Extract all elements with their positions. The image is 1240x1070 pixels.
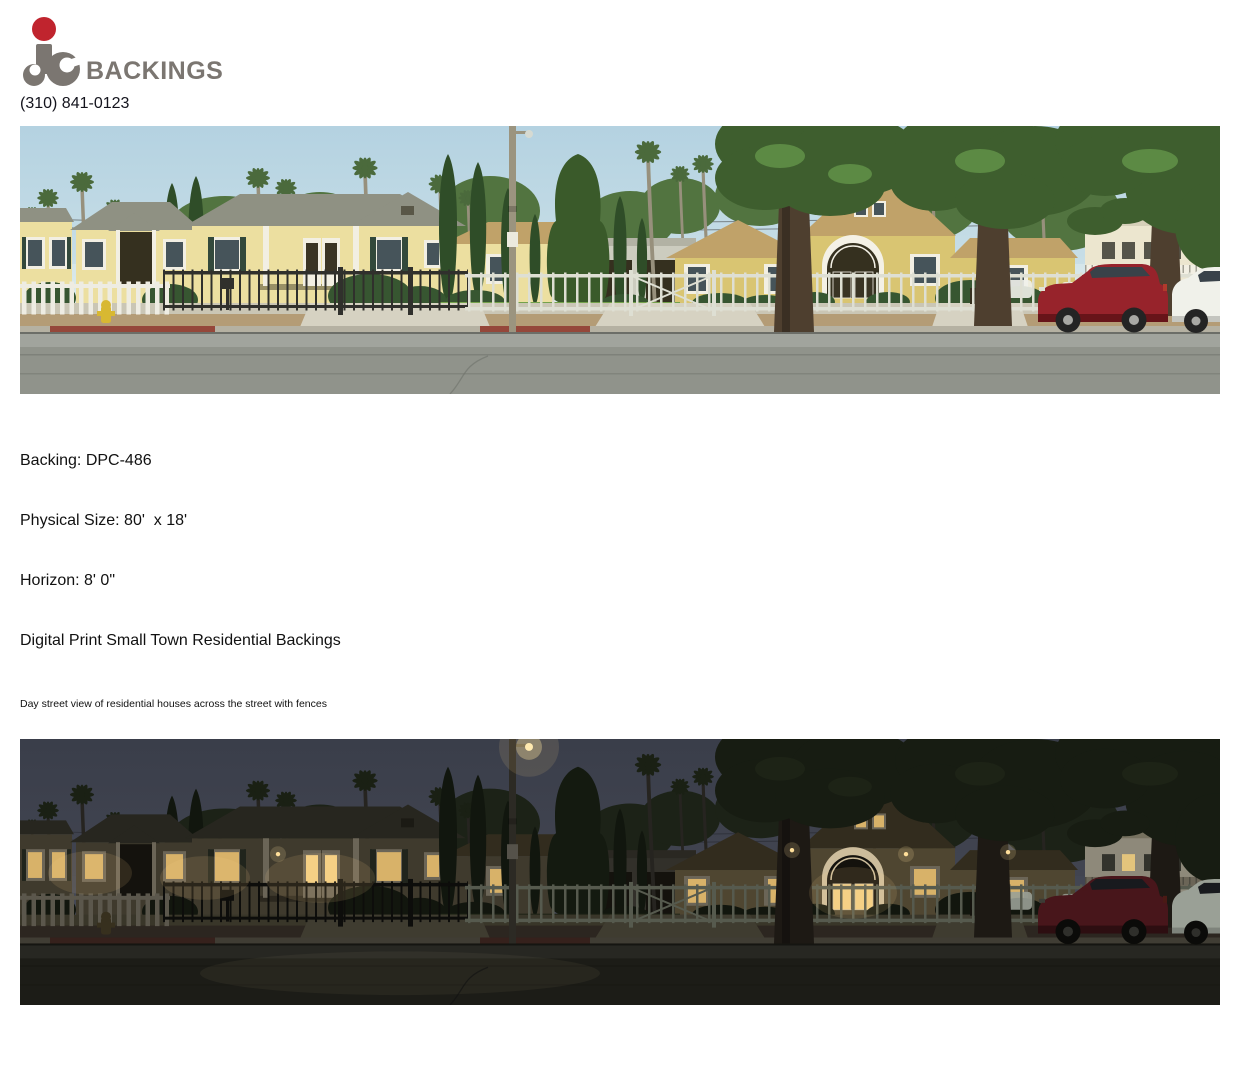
street-scene	[20, 126, 1220, 394]
jc-logo-icon	[20, 16, 82, 92]
street-scene	[20, 739, 1220, 1005]
night-panorama-image[interactable]	[20, 739, 1220, 1005]
day-panorama-image[interactable]	[20, 126, 1220, 394]
catalog-page: BACKINGS (310) 841-0123	[0, 0, 1240, 1005]
horizon-line: Horizon: 8' 0"	[20, 571, 1220, 591]
brand-name: BACKINGS	[86, 57, 223, 86]
backing-id-line: Backing: DPC-486	[20, 451, 1220, 471]
product-description: Day street view of residential houses ac…	[20, 698, 1220, 710]
category-line: Digital Print Small Town Residential Bac…	[20, 631, 1220, 651]
product-info: Backing: DPC-486 Physical Size: 80' x 18…	[20, 411, 1220, 691]
brand-header[interactable]: BACKINGS	[20, 0, 1220, 92]
phone-number: (310) 841-0123	[20, 95, 1220, 113]
physical-size-line: Physical Size: 80' x 18'	[20, 511, 1220, 531]
